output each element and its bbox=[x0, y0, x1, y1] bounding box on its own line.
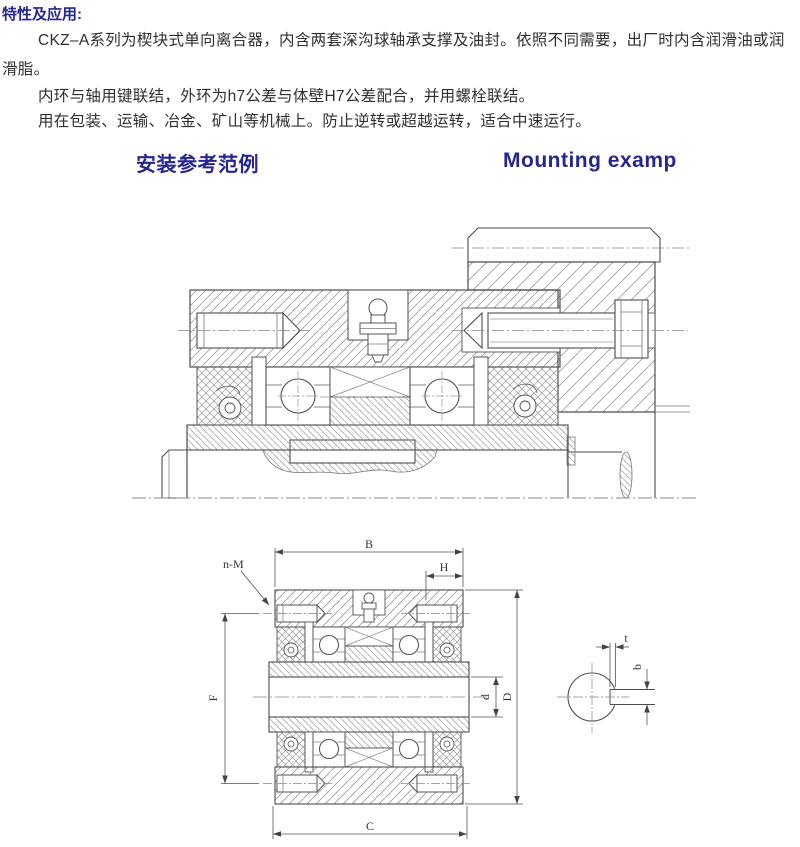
dim-label-t: t bbox=[624, 631, 628, 645]
shaft-break bbox=[620, 452, 632, 498]
paragraph-line: CKZ–A系列为楔块式单向离合器，内含两套深沟球轴承支撑及油封。依照不同需要，出… bbox=[38, 28, 785, 50]
wall-cap bbox=[468, 228, 660, 262]
dim-label-b: b bbox=[630, 664, 644, 670]
bearing-row-top bbox=[277, 622, 461, 662]
bearing-row bbox=[197, 357, 558, 425]
grease-fitting bbox=[362, 593, 376, 622]
inner-ring-bottom bbox=[269, 717, 469, 732]
heading-zh: 安装参考范例 bbox=[136, 148, 259, 177]
mounting-example-drawing bbox=[130, 213, 700, 505]
spacer-right bbox=[474, 357, 488, 425]
dim-label-H: H bbox=[440, 560, 449, 574]
paragraph-line: 内环与轴用键联结，外环为h7公差与体壁H7公差配合，并用螺栓联结。 bbox=[38, 84, 534, 106]
dimension-drawing: B H n-M F d D C t b bbox=[205, 537, 675, 847]
section-title: 特性及应用: bbox=[2, 3, 82, 24]
heading-en: Mounting examp bbox=[503, 149, 677, 173]
bolt-head bbox=[615, 300, 648, 358]
dim-label-C: C bbox=[366, 819, 374, 833]
dim-label-d: d bbox=[478, 694, 492, 700]
dim-label-nM: n-M bbox=[223, 557, 244, 571]
inner-ring-top bbox=[269, 662, 469, 677]
bearing-row-bottom bbox=[277, 732, 461, 772]
catalog-page: { "intro": { "title": "特性及应用:", "lines":… bbox=[0, 0, 800, 847]
paragraph-line: 滑脂。 bbox=[2, 57, 49, 79]
paragraph-line: 用在包装、运输、冶金、矿山等机械上。防止逆转或超越运转，适合中速运行。 bbox=[38, 109, 591, 131]
dim-label-F: F bbox=[206, 694, 220, 701]
clutch-section bbox=[253, 590, 487, 804]
dim-label-D: D bbox=[500, 692, 514, 701]
keyway-detail: t b bbox=[557, 631, 655, 733]
spacer-left bbox=[252, 357, 266, 425]
dim-label-B: B bbox=[365, 537, 373, 551]
